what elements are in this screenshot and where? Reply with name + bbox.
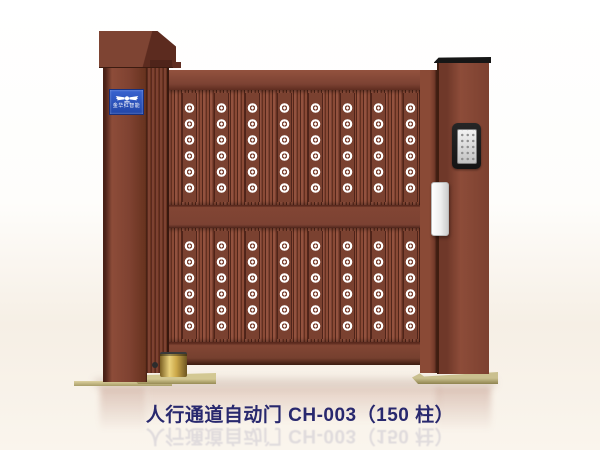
product-caption: 人行通道自动门 CH-003（150 柱） (0, 400, 600, 427)
caster-wheel (160, 352, 187, 377)
rosette-column (340, 93, 355, 202)
rosette-column (371, 231, 386, 339)
hinge-bracket-small (173, 62, 181, 68)
gate-middle-rail (168, 205, 421, 228)
gate-handle (431, 182, 449, 236)
rosette-pattern (372, 100, 385, 196)
rosette-column (277, 231, 292, 339)
keypad-buttons (457, 129, 477, 164)
brand-sign-text: 金华红智能 (113, 104, 141, 109)
wings-emblem-icon (115, 95, 139, 103)
rosette-pattern (341, 238, 354, 334)
rosette-column (182, 231, 197, 339)
rosette-column (308, 231, 323, 339)
rosette-column (340, 231, 355, 339)
rosette-pattern (183, 238, 196, 334)
rosette-pattern (183, 100, 196, 196)
rosette-column (403, 231, 418, 339)
rosette-pattern (215, 238, 228, 334)
product-photo-stage: 金华红智能 (0, 0, 600, 450)
rosette-pattern (404, 100, 417, 196)
gate-lower-panel (168, 228, 421, 342)
gate-hinge-stile (147, 66, 169, 373)
rosette-column (403, 93, 418, 202)
access-keypad (452, 123, 481, 169)
rosette-pattern (341, 100, 354, 196)
rosette-column (214, 231, 229, 339)
rosette-column (214, 93, 229, 202)
hinge-bracket (150, 60, 172, 67)
brand-sign: 金华红智能 (109, 89, 144, 115)
gate-top-rail (168, 70, 421, 91)
product-caption-reflection: 人行通道自动门 CH-003（150 柱） (0, 424, 600, 450)
rosette-column (308, 93, 323, 202)
rosette-pattern (246, 100, 259, 196)
rosette-pattern (246, 238, 259, 334)
rosette-pattern (278, 238, 291, 334)
rosette-column (245, 93, 260, 202)
rosette-pattern (278, 100, 291, 196)
gate-leaf (167, 70, 421, 365)
rosette-pattern (372, 238, 385, 334)
rosette-pattern (404, 238, 417, 334)
rosette-column (245, 231, 260, 339)
rosette-pattern (309, 100, 322, 196)
gate-bottom-rail (168, 342, 421, 365)
rosette-column (182, 93, 197, 202)
gate-upper-panel (168, 90, 421, 205)
rosette-column (371, 93, 386, 202)
rosette-pattern (309, 238, 322, 334)
rosette-pattern (215, 100, 228, 196)
right-post-top-cap (434, 57, 491, 63)
rosette-column (277, 93, 292, 202)
caster-bolt (152, 362, 158, 368)
